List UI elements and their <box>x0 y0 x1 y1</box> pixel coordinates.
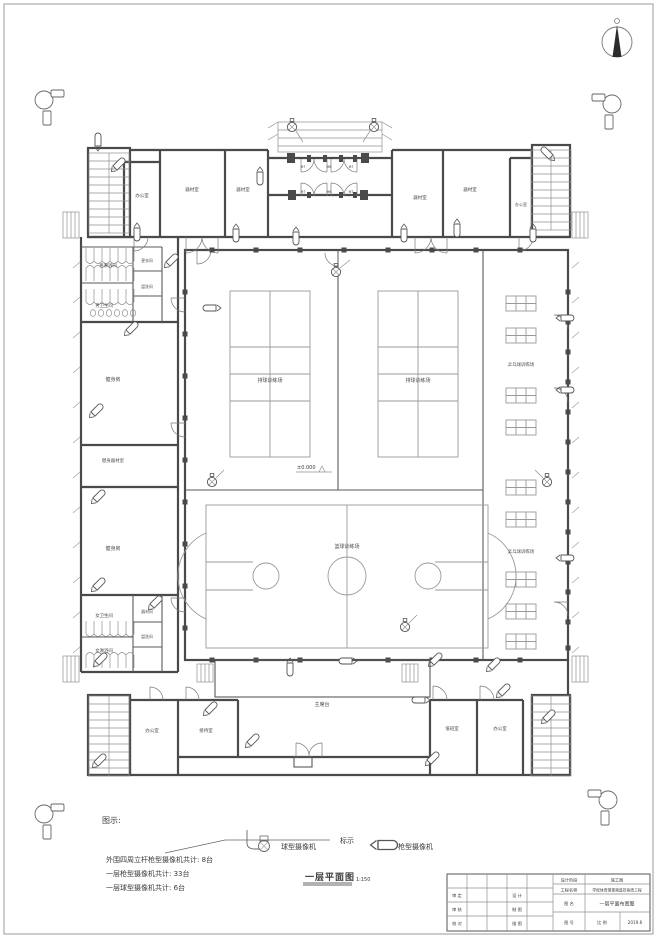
pole-camera-icon <box>35 804 64 839</box>
sanitary-fixtures <box>86 248 136 668</box>
drawing-title: 一层平面图 <box>305 872 355 883</box>
doors <box>134 237 568 757</box>
basketball-court <box>178 505 516 648</box>
bullet-camera-legend-icon <box>371 841 398 850</box>
volleyball-courts <box>230 291 458 457</box>
tb-scale-label: 比 例 <box>597 919 607 926</box>
table-tennis-area <box>506 296 536 649</box>
room-label-gym: 健身房 <box>105 545 120 552</box>
tb-date-value: 2019.6 <box>628 920 643 925</box>
drawing-scale: 1:150 <box>356 877 370 883</box>
court-label-table-tennis: 乒乓球训练场 <box>508 361 535 368</box>
room-label-washroom: 盥洗间 <box>141 634 153 639</box>
pole-camera-icon <box>588 790 617 825</box>
tb-draft-2: 描 图 <box>512 920 522 927</box>
room-label-gym: 健身房 <box>105 376 120 383</box>
tb-review-2: 校 对 <box>452 920 462 927</box>
legend-count-dome: 一层球型摄像机共计: 6台 <box>106 883 185 892</box>
room-label-gym-equipment: 健身器材室 <box>102 457 125 464</box>
title-underline <box>303 883 352 885</box>
entrance-portico: M7 M6 M7 M7 M6 M7 <box>268 122 392 200</box>
legend-count-pole: 外围四周立杆枪型摄像机共计: 8台 <box>106 855 213 864</box>
room-label-mens-shower: 男淋浴间 <box>99 262 117 269</box>
tb-draft-1: 制 图 <box>512 906 522 913</box>
tb-number-label: 图 号 <box>564 920 574 926</box>
room-label-womens-shower: 女淋浴间 <box>95 647 113 654</box>
legend-dome-label: 球型摄像机 <box>281 842 316 851</box>
tb-drawing-value: 一层平面布置图 <box>599 901 634 908</box>
legend-heading: 图示: <box>102 816 121 825</box>
door-label: M6 <box>327 165 332 169</box>
door-label: M7 <box>301 190 306 194</box>
court-label-table-tennis: 乒乓球训练场 <box>508 548 535 555</box>
rostrum-platform <box>197 660 430 697</box>
room-label-office: 办公室 <box>135 192 149 199</box>
room-label-office: 办公室 <box>145 727 159 734</box>
room-label-rostrum: 主席台 <box>314 701 329 708</box>
tb-stage-value: 施工图 <box>611 877 624 884</box>
room-label-office: 办公室 <box>493 725 507 732</box>
pole-camera-icon <box>592 94 621 129</box>
court-label-volleyball: 排球训练场 <box>405 377 430 384</box>
title-block: 审 定 审 核 校 对 设 计 制 图 描 图 设计阶段 施工图 工程名称 学校… <box>447 874 650 931</box>
door-label: M7 <box>349 165 354 169</box>
room-label-changing: 更衣间 <box>141 258 153 263</box>
dome-camera-legend-icon <box>247 830 270 852</box>
stairs <box>63 150 588 776</box>
door-label: M7 <box>301 165 306 169</box>
drawing-sheet: M7 M6 M7 M7 M6 M7 <box>0 0 657 938</box>
legend: 图示: 标示 球型摄像机 枪型摄像机 外围四周立杆枪型摄像机共计: 8台 一层枪… <box>102 816 433 892</box>
room-label-equipment: 器材室 <box>185 186 199 193</box>
room-label-storage: 器材间 <box>141 609 153 614</box>
room-label-reception: 接待室 <box>199 727 213 734</box>
legend-count-gun: 一层枪型摄像机共计: 33台 <box>106 869 190 878</box>
elevation-label: ±0.000 <box>297 465 316 471</box>
room-label-office: 办公室 <box>515 201 527 207</box>
room-label-womens-toilet: 女卫生间 <box>95 612 113 619</box>
pilasters <box>183 248 571 663</box>
tb-review-1: 审 核 <box>452 906 463 913</box>
room-labels: 办公室 器材室 器材室 器材室 器材室 办公室 男淋浴间 男卫生间 更衣间 盥洗… <box>95 186 535 734</box>
door-label: M7 <box>349 190 354 194</box>
tb-project-label: 工程名称 <box>561 887 578 894</box>
tb-stage-label: 设计阶段 <box>561 877 579 884</box>
tb-drawing-label: 图 名 <box>564 900 574 907</box>
elevation-marker: ±0.000 <box>296 465 332 472</box>
room-label-equipment: 器材室 <box>413 194 427 201</box>
tb-project-value: 学校体育馆视频监控系统工程 <box>592 888 642 893</box>
court-label-volleyball: 排球训练场 <box>257 377 282 384</box>
north-arrow-icon <box>602 19 632 58</box>
walls <box>81 145 570 775</box>
court-label-basketball: 篮球训练场 <box>334 543 359 550</box>
room-label-equipment: 器材室 <box>463 186 477 193</box>
tb-review-0: 审 定 <box>452 892 462 899</box>
door-label: M6 <box>327 190 332 194</box>
room-label-duty: 值班室 <box>445 725 459 732</box>
tb-draft-0: 设 计 <box>512 892 522 899</box>
room-label-washroom: 盥洗间 <box>141 284 153 289</box>
floor-plan-svg: M7 M6 M7 M7 M6 M7 <box>0 0 657 938</box>
pole-camera-icon <box>35 90 64 125</box>
legend-mark-label: 标示 <box>340 836 354 845</box>
room-label-mens-toilet: 男卫生间 <box>95 302 113 309</box>
legend-bullet-label: 枪型摄像机 <box>398 842 433 851</box>
room-label-equipment: 器材室 <box>236 186 250 193</box>
